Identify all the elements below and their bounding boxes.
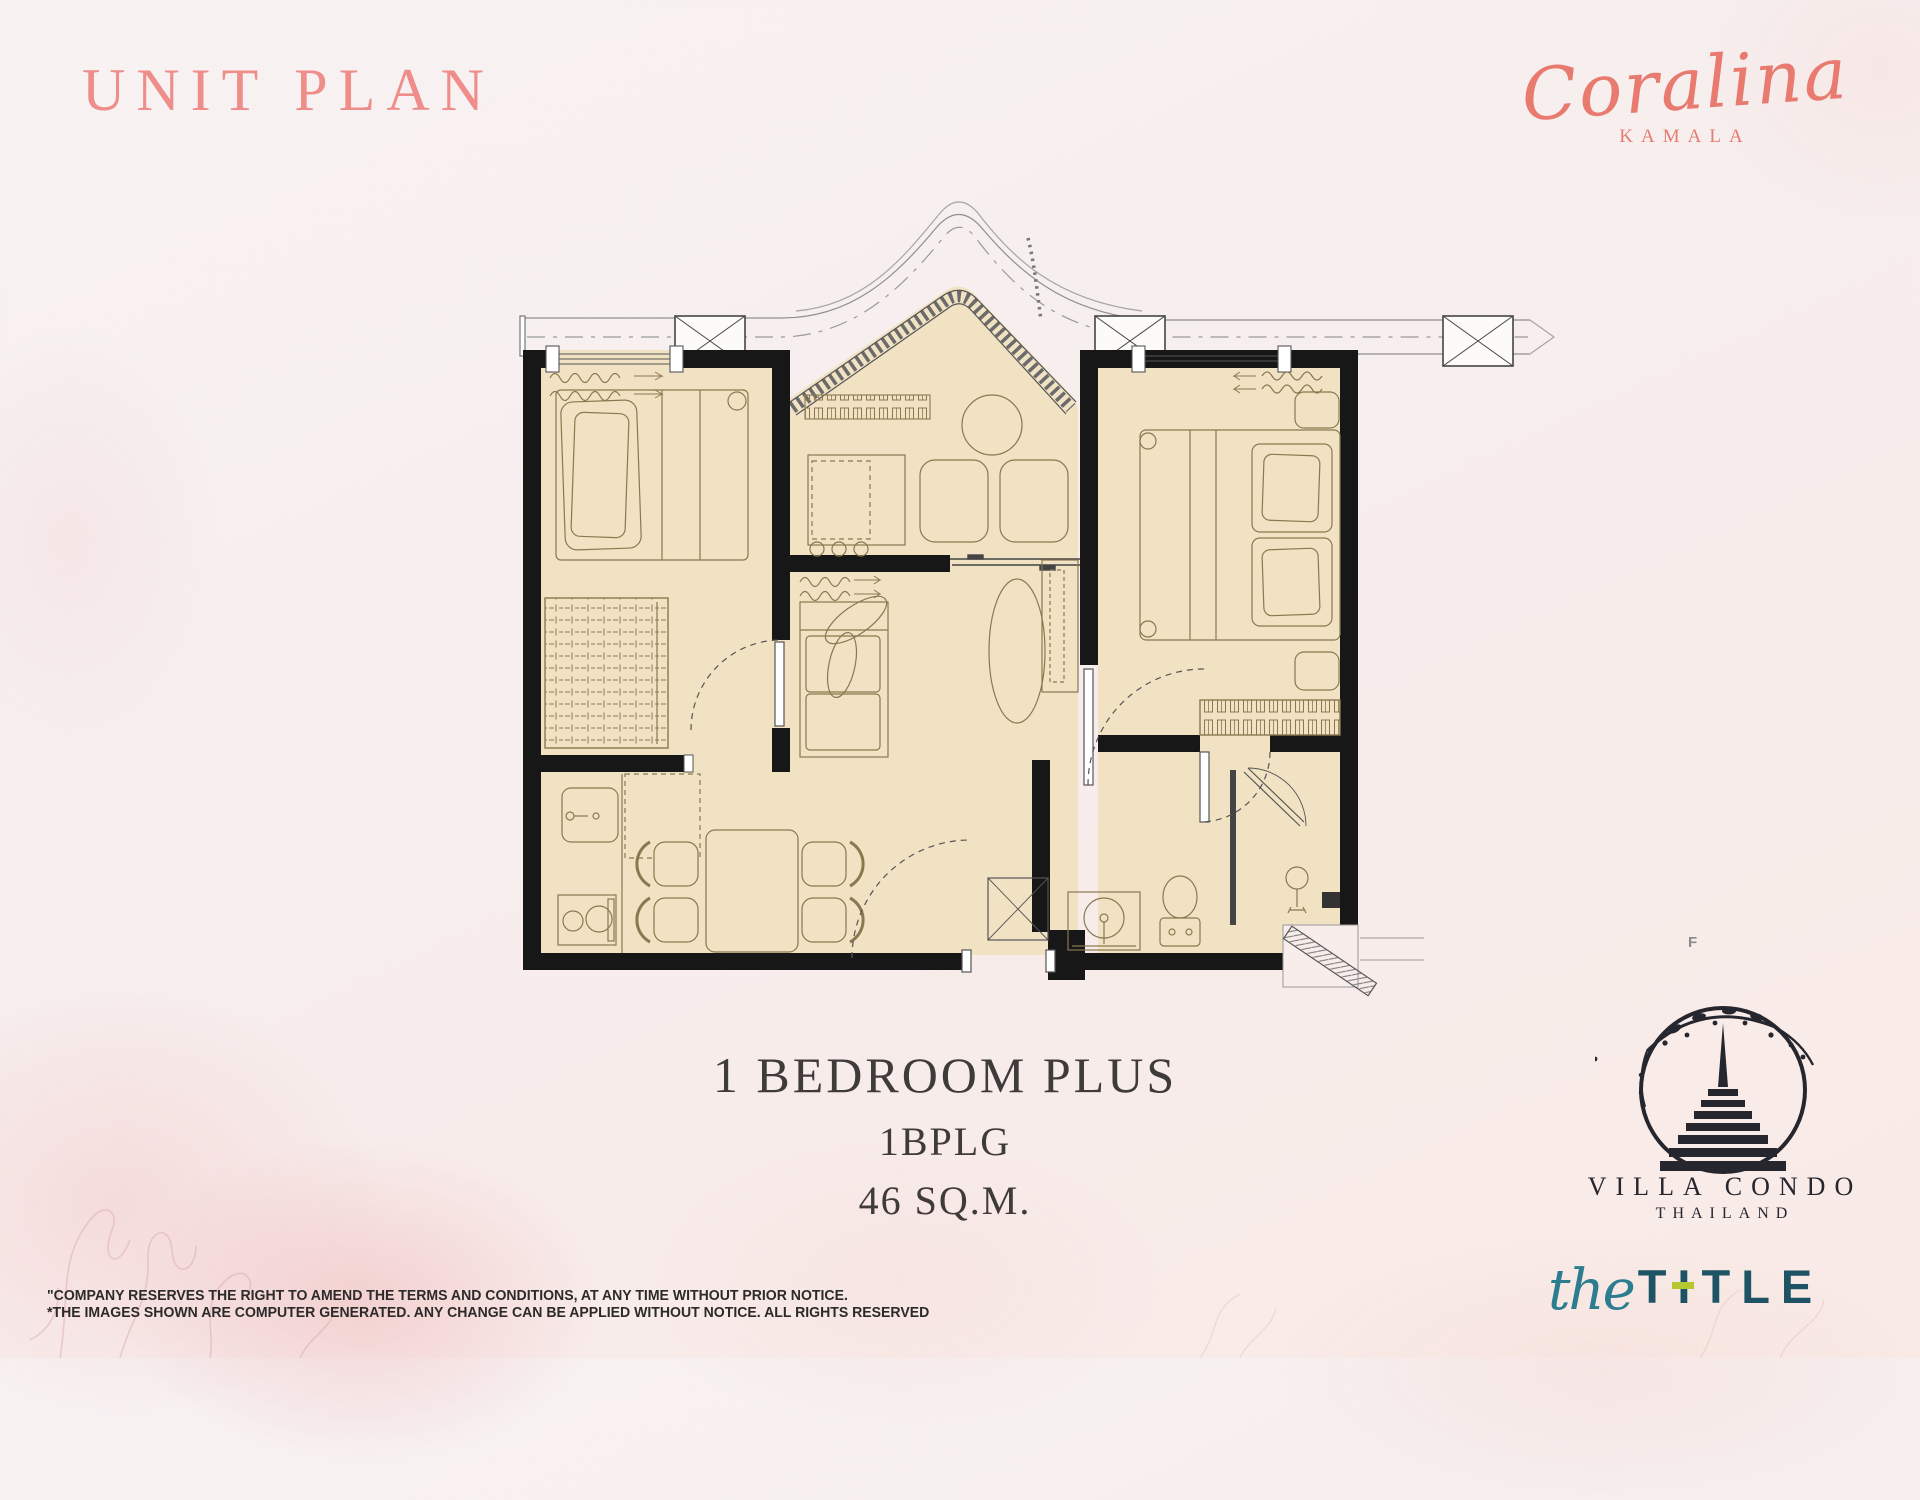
brand-logo: Coralina KAMALA	[1490, 48, 1880, 148]
unit-area: 46 SQ.M.	[545, 1177, 1345, 1224]
floor-plan-drawing	[500, 170, 1560, 1070]
pagoda-icon	[1660, 1023, 1786, 1171]
brand-wordmark: Coralina	[1488, 34, 1882, 133]
entrance	[1283, 925, 1424, 996]
unit-name: 1 BEDROOM PLUS	[545, 1046, 1345, 1104]
villa-condo-country: THAILAND	[1560, 1205, 1890, 1223]
partition-wall	[1230, 770, 1236, 925]
unit-info: 1 BEDROOM PLUS 1BPLG 46 SQ.M.	[545, 1046, 1345, 1224]
villa-condo-name: VILLA CONDO	[1560, 1172, 1890, 1202]
branch-decoration	[1595, 1008, 1813, 1108]
watercolor-blob	[0, 330, 220, 750]
disclaimer: "COMPANY RESERVES THE RIGHT TO AMEND THE…	[47, 1288, 929, 1322]
unit-plan-page: { "page": { "title_label": "UNIT PLAN", …	[0, 0, 1920, 1358]
floor-plan	[500, 170, 1560, 1070]
floor-marker: F	[1688, 934, 1697, 951]
watercolor-blob	[0, 990, 380, 1420]
the-title-lime-accent	[1672, 1282, 1694, 1289]
villa-condo-logo-icon	[1595, 995, 1855, 1180]
the-title-logo: theTITLE	[1548, 1258, 1878, 1323]
the-title-script: the	[1548, 1258, 1634, 1323]
unit-code: 1BPLG	[545, 1118, 1345, 1165]
wardrobe	[1200, 700, 1340, 735]
the-title-caps: TITLE	[1638, 1260, 1824, 1313]
disclaimer-line-1: "COMPANY RESERVES THE RIGHT TO AMEND THE…	[47, 1288, 929, 1305]
wardrobe	[545, 598, 668, 748]
shelf-unit	[805, 395, 930, 419]
disclaimer-line-2: *THE IMAGES SHOWN ARE COMPUTER GENERATED…	[47, 1305, 929, 1322]
page-title: UNIT PLAN	[82, 56, 495, 125]
